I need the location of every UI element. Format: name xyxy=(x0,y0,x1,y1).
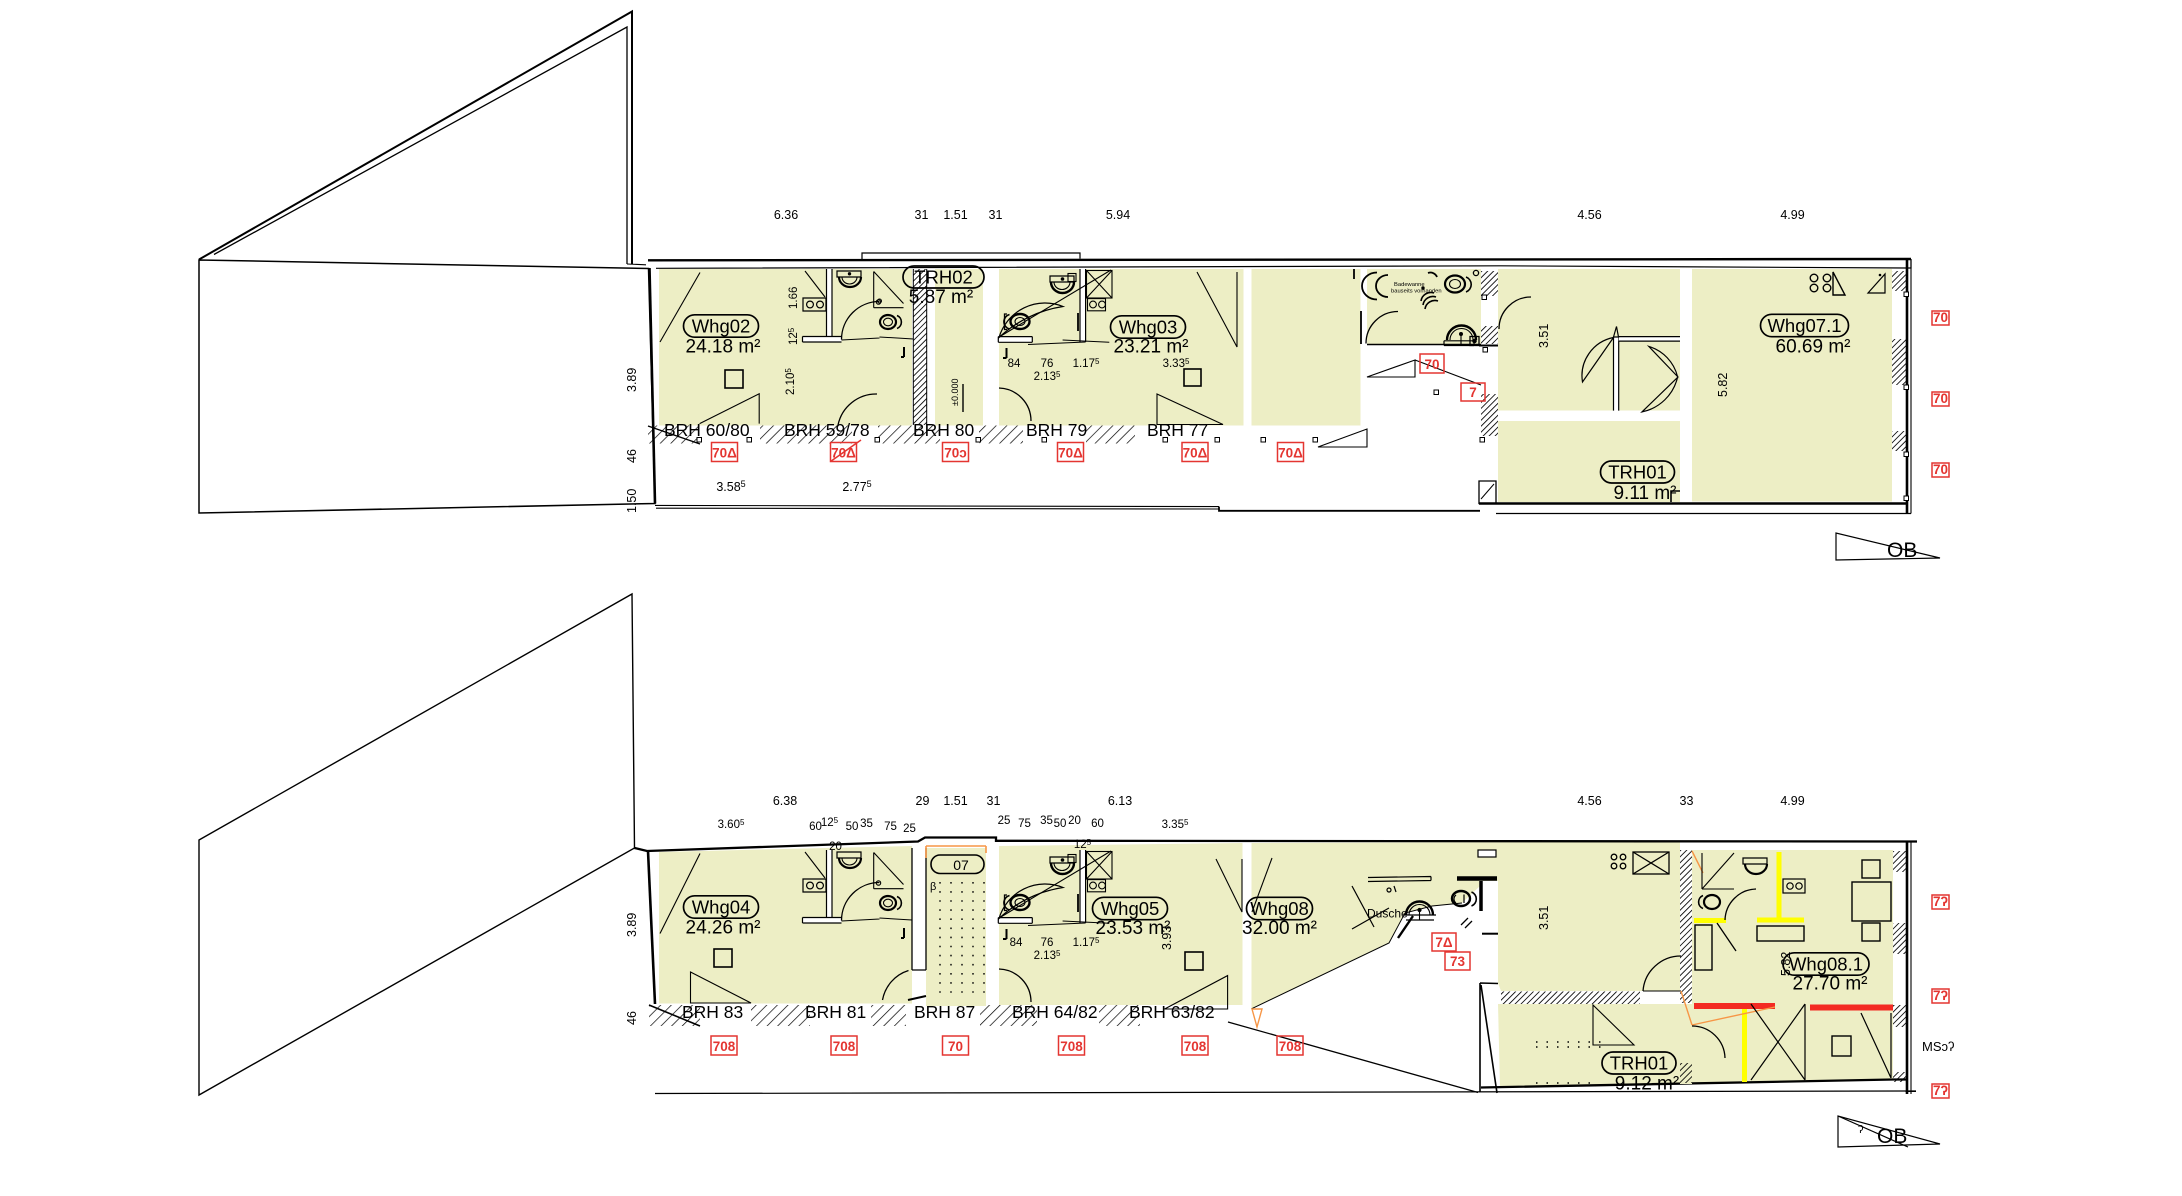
svg-text:7ʔ: 7ʔ xyxy=(1933,988,1948,1003)
svg-text:31: 31 xyxy=(987,794,1001,808)
svg-text:3.51: 3.51 xyxy=(1537,324,1551,348)
svg-text:7ʔ: 7ʔ xyxy=(1933,1083,1948,1098)
svg-text:ʔ: ʔ xyxy=(1858,1124,1864,1136)
svg-text:29: 29 xyxy=(916,794,930,808)
svg-text:60.69 m²: 60.69 m² xyxy=(1776,337,1851,358)
svg-text:5.82: 5.82 xyxy=(1716,373,1730,397)
svg-text:Whg02: Whg02 xyxy=(692,316,751,337)
svg-text:50: 50 xyxy=(846,821,859,833)
svg-text:70: 70 xyxy=(1933,462,1948,477)
svg-text:BRH 79: BRH 79 xyxy=(1026,420,1087,440)
svg-text:70: 70 xyxy=(1424,357,1439,372)
svg-text:BRH 80: BRH 80 xyxy=(913,420,975,440)
svg-text:Whg07.1: Whg07.1 xyxy=(1767,315,1841,336)
svg-text:3.89: 3.89 xyxy=(625,913,639,937)
svg-text:708: 708 xyxy=(713,1039,736,1054)
svg-text:BRH 87: BRH 87 xyxy=(914,1002,975,1022)
svg-text:20: 20 xyxy=(829,841,842,853)
svg-text:TRH01: TRH01 xyxy=(1608,462,1667,483)
svg-text:708: 708 xyxy=(1060,1039,1083,1054)
svg-text:OB: OB xyxy=(1887,539,1917,562)
svg-text:84: 84 xyxy=(1008,358,1021,370)
svg-text:±0.000: ±0.000 xyxy=(950,379,960,406)
svg-text:5.87 m²: 5.87 m² xyxy=(909,287,973,308)
svg-text:3.93: 3.93 xyxy=(1160,926,1174,950)
svg-text:708: 708 xyxy=(833,1039,856,1054)
svg-text:6.36: 6.36 xyxy=(774,208,798,222)
svg-text:25: 25 xyxy=(998,815,1011,827)
svg-text:9.12 m²: 9.12 m² xyxy=(1615,1074,1679,1095)
svg-text:4.56: 4.56 xyxy=(1577,794,1601,808)
svg-text:1.51: 1.51 xyxy=(943,794,967,808)
svg-text:BRH 60/80: BRH 60/80 xyxy=(664,420,750,440)
svg-text:46: 46 xyxy=(625,449,639,463)
svg-text:Badewanne: Badewanne xyxy=(1394,282,1425,288)
svg-text:70Δ: 70Δ xyxy=(1058,446,1083,461)
svg-text:BRH 59/78: BRH 59/78 xyxy=(784,420,870,440)
svg-text:708: 708 xyxy=(1279,1039,1302,1054)
svg-text:70Δ: 70Δ xyxy=(831,446,856,461)
svg-text:TRH02: TRH02 xyxy=(914,267,973,288)
svg-text:Whg03: Whg03 xyxy=(1119,317,1178,338)
svg-text:1.51: 1.51 xyxy=(943,208,967,222)
svg-text:24.18 m²: 24.18 m² xyxy=(686,337,761,358)
svg-text:6.13: 6.13 xyxy=(1108,794,1132,808)
svg-text:1.66: 1.66 xyxy=(788,287,800,309)
svg-text:708: 708 xyxy=(1184,1039,1207,1054)
svg-text:31: 31 xyxy=(989,208,1003,222)
svg-text:1.50: 1.50 xyxy=(625,489,639,513)
svg-text:33: 33 xyxy=(1680,794,1694,808)
svg-text:70: 70 xyxy=(1933,310,1948,325)
svg-text:6.38: 6.38 xyxy=(773,794,797,808)
svg-text:3.51: 3.51 xyxy=(1537,906,1551,930)
svg-text:07: 07 xyxy=(953,857,969,873)
svg-text:31: 31 xyxy=(915,208,929,222)
svg-text:BRH 77: BRH 77 xyxy=(1147,420,1208,440)
svg-text:4.99: 4.99 xyxy=(1780,208,1804,222)
svg-text:Whg05: Whg05 xyxy=(1101,898,1160,919)
svg-text:bauseits vorhanden: bauseits vorhanden xyxy=(1391,289,1442,295)
svg-text:TRH01: TRH01 xyxy=(1610,1053,1669,1074)
svg-text:70: 70 xyxy=(948,1039,963,1054)
svg-text:3.89: 3.89 xyxy=(625,368,639,392)
svg-text:27.70 m²: 27.70 m² xyxy=(1793,974,1868,995)
svg-text:4.99: 4.99 xyxy=(1780,794,1804,808)
svg-text:23.21 m²: 23.21 m² xyxy=(1114,337,1189,358)
svg-text:25: 25 xyxy=(903,823,916,835)
svg-text:70Δ: 70Δ xyxy=(1278,446,1303,461)
svg-text:20: 20 xyxy=(1068,815,1081,827)
svg-text:70Δ: 70Δ xyxy=(712,446,737,461)
svg-text:35: 35 xyxy=(1040,815,1053,827)
svg-text:BRH 83: BRH 83 xyxy=(682,1002,743,1022)
svg-text:5.82: 5.82 xyxy=(1779,952,1793,976)
svg-text:46: 46 xyxy=(625,1011,639,1025)
svg-text:24.26 m²: 24.26 m² xyxy=(686,918,761,939)
svg-text:OB: OB xyxy=(1877,1125,1907,1148)
svg-text:84: 84 xyxy=(1010,937,1023,949)
svg-text:73: 73 xyxy=(1450,954,1466,969)
svg-text:7Δ: 7Δ xyxy=(1435,935,1453,950)
svg-text:75: 75 xyxy=(884,821,897,833)
svg-text:70Δ: 70Δ xyxy=(1183,446,1208,461)
svg-text:70: 70 xyxy=(1933,391,1948,406)
svg-text:9.11 m²: 9.11 m² xyxy=(1613,483,1676,504)
svg-text:Whg08.1: Whg08.1 xyxy=(1789,954,1863,975)
svg-text:7: 7 xyxy=(1469,385,1477,400)
svg-text:7ʔ: 7ʔ xyxy=(1933,894,1948,909)
svg-text:32.00 m²: 32.00 m² xyxy=(1242,918,1317,939)
svg-text:5.94: 5.94 xyxy=(1106,208,1130,222)
svg-text:BRH 64/82: BRH 64/82 xyxy=(1012,1002,1098,1022)
svg-text:76: 76 xyxy=(1041,937,1054,949)
svg-text:70ɔ: 70ɔ xyxy=(944,446,967,461)
svg-text:MSɔʔ: MSɔʔ xyxy=(1922,1039,1955,1054)
svg-text:Dusche: Dusche xyxy=(1367,907,1408,921)
svg-text:50: 50 xyxy=(1054,818,1067,830)
svg-text:76: 76 xyxy=(1041,358,1054,370)
svg-text:60: 60 xyxy=(1091,818,1104,830)
svg-text:4.56: 4.56 xyxy=(1577,208,1601,222)
svg-text:Whg04: Whg04 xyxy=(692,897,751,918)
svg-text:BRH 63/82: BRH 63/82 xyxy=(1129,1002,1215,1022)
svg-text:35: 35 xyxy=(860,818,873,830)
svg-text:Whg08: Whg08 xyxy=(1250,898,1309,919)
svg-text:75: 75 xyxy=(1018,818,1031,830)
svg-text:β: β xyxy=(930,881,936,893)
svg-text:BRH 81: BRH 81 xyxy=(805,1002,866,1022)
